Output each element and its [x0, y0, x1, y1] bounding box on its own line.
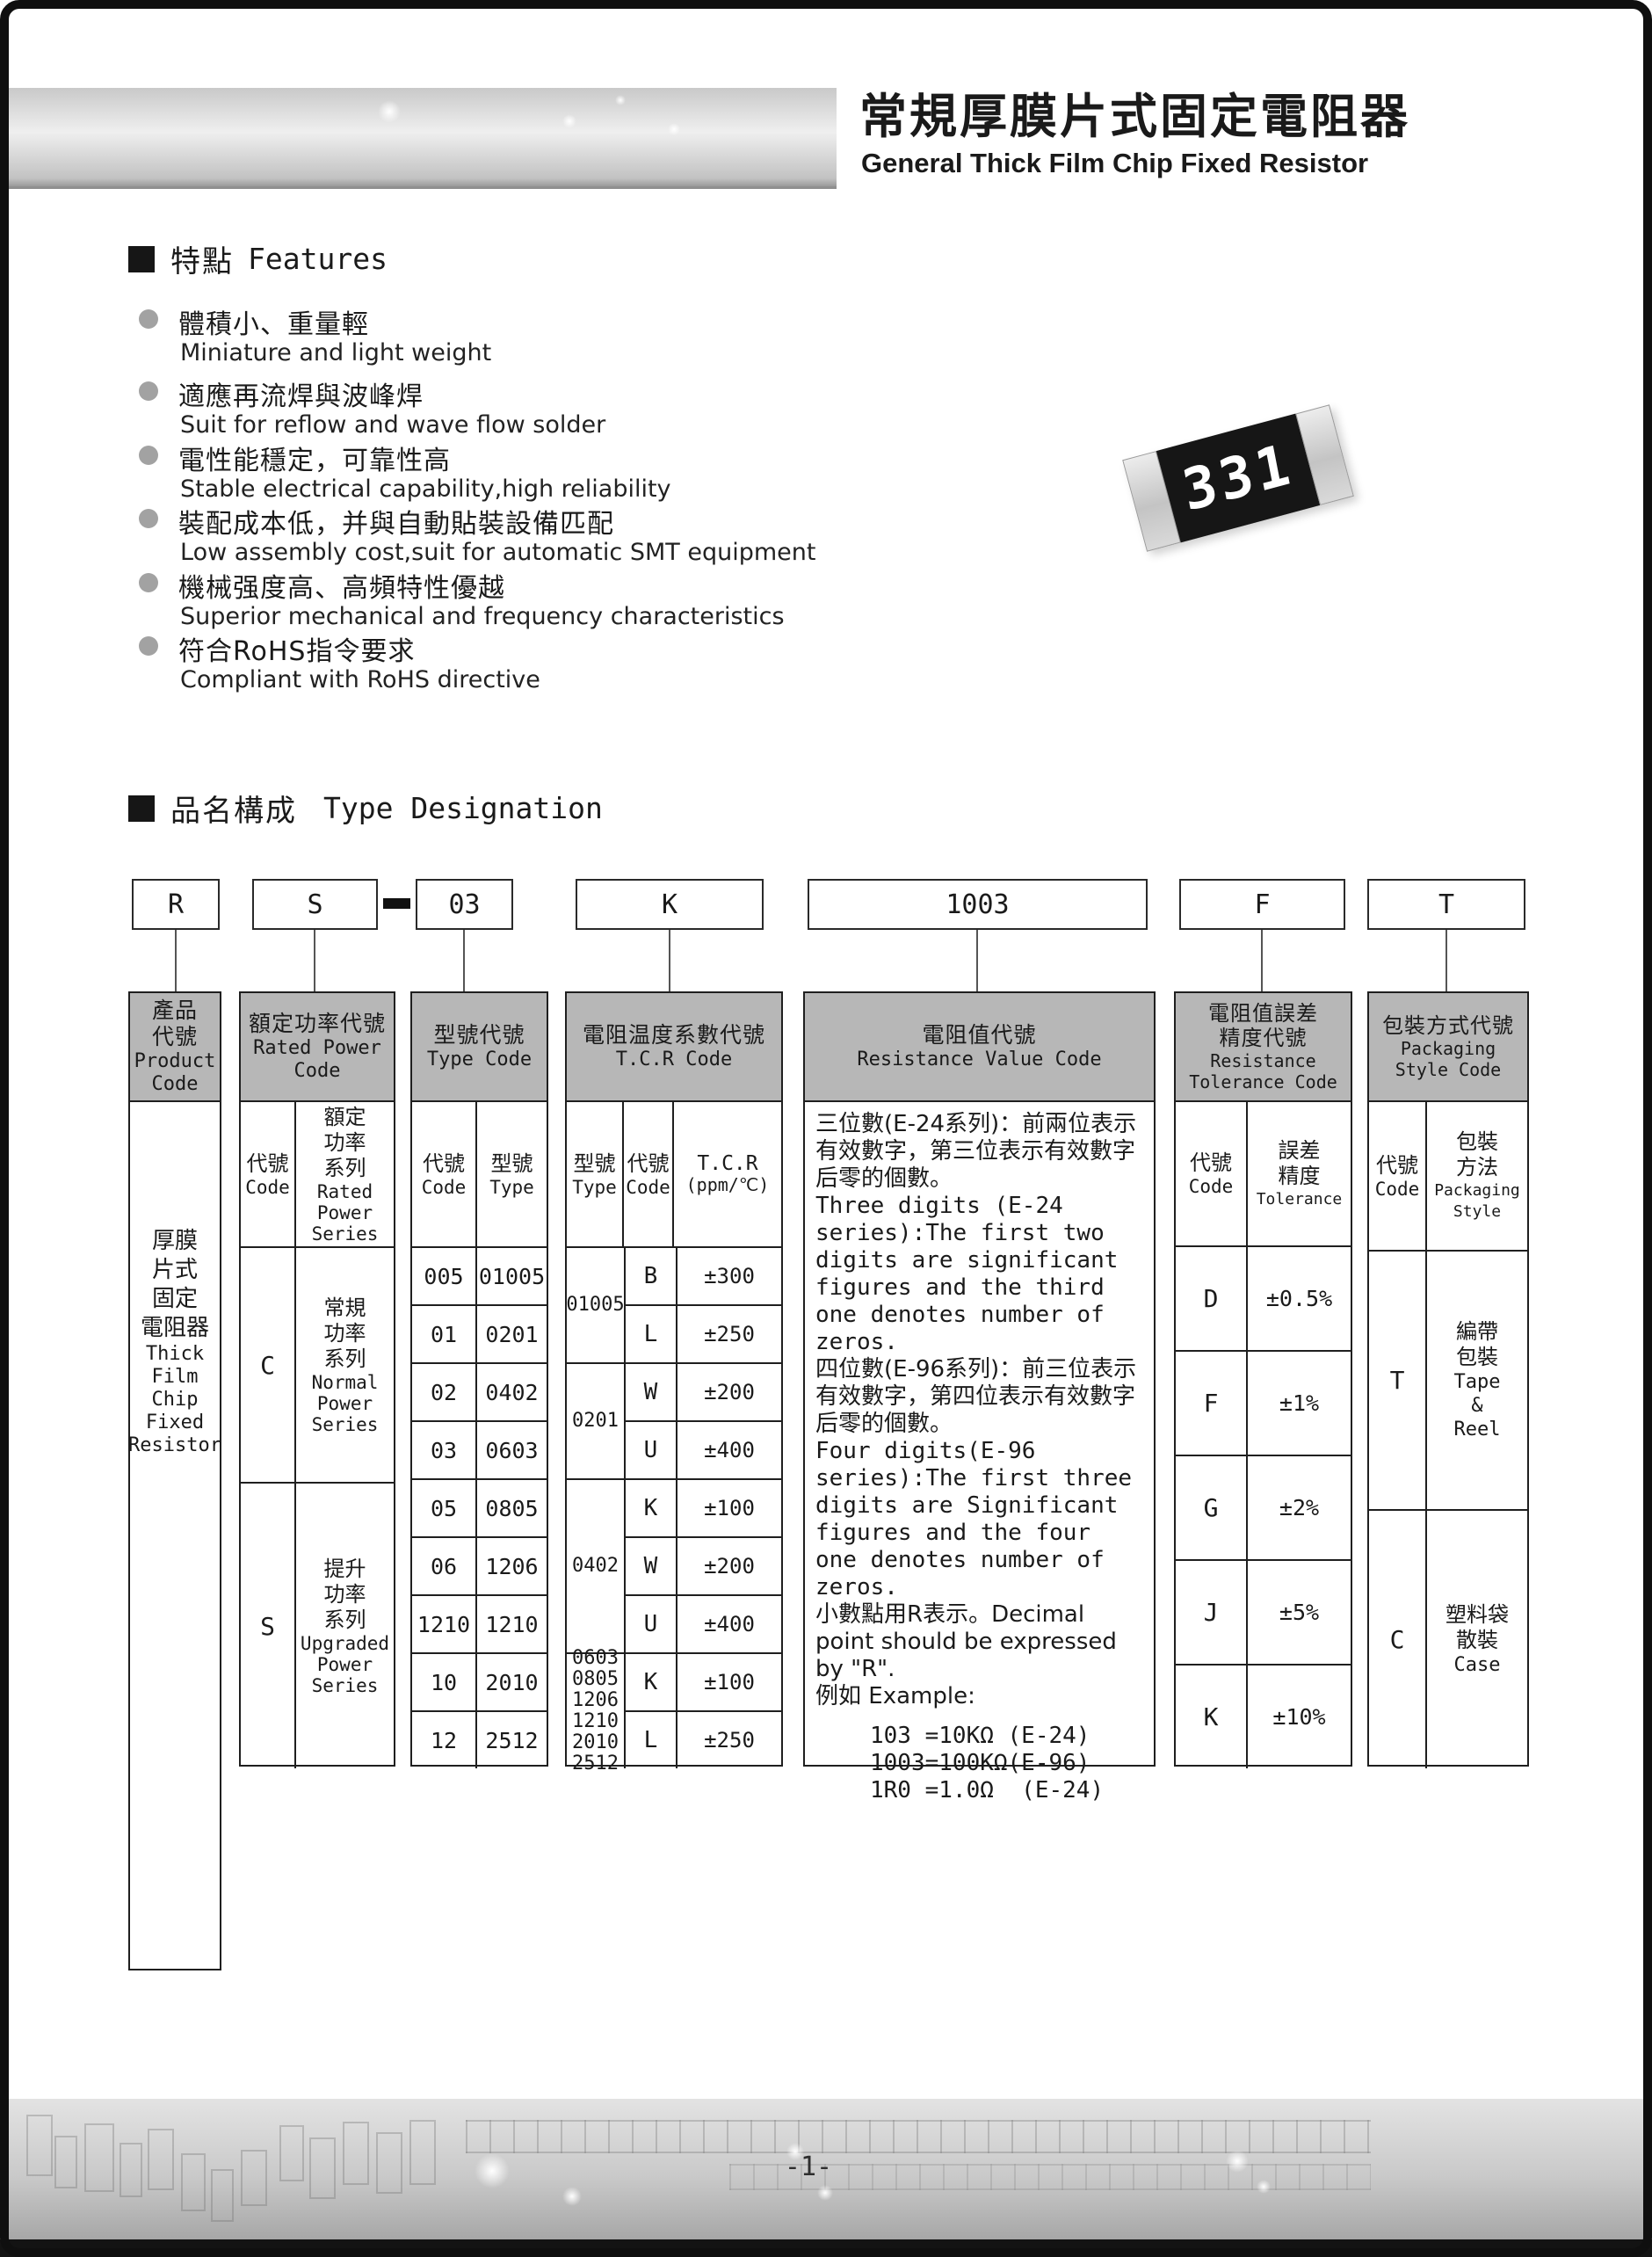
- packaging-row-case: C 塑料袋 散裝 Case: [1369, 1509, 1527, 1768]
- type-label-cell: 型號 Type: [567, 1102, 624, 1246]
- feature-item-cjk: 機械强度高、高頻特性優越: [178, 566, 505, 605]
- feature-item-en: Low assembly cost,suit for automatic SMT…: [180, 539, 815, 566]
- footer-decor-rect: [148, 2129, 174, 2190]
- header-line: 電阻值代號: [922, 1022, 1036, 1049]
- header-line: T.C.R Code: [616, 1049, 732, 1071]
- tcr-row: L ±250: [626, 1710, 781, 1768]
- feature-item-en: Miniature and light weight: [180, 339, 491, 366]
- bullet-icon: [139, 381, 158, 401]
- tcr-row: K ±100: [626, 1654, 781, 1710]
- type-line: 2010: [572, 1732, 619, 1753]
- column-type-header: 型號代號 Type Code: [412, 993, 547, 1102]
- type-code: 05: [412, 1480, 477, 1536]
- tcr-row: U ±400: [626, 1594, 781, 1652]
- tcr-value: ±200: [677, 1364, 781, 1420]
- footer-decor-rect: [309, 2137, 336, 2199]
- code-box-type: 03: [416, 879, 513, 930]
- product-name-line: Thick: [146, 1343, 204, 1366]
- tcr-group-rows: K ±100 L ±250: [624, 1654, 781, 1768]
- tolerance-value: ±1%: [1248, 1352, 1351, 1455]
- label-line: 型號: [574, 1151, 616, 1177]
- type-code: 10: [412, 1654, 477, 1710]
- value-example-line: 1R0 =1.0Ω (E-24): [815, 1777, 1143, 1804]
- product-name-line: 電阻器: [141, 1314, 209, 1343]
- footer-decor-rect: [181, 2153, 206, 2211]
- type-size: 0201: [477, 1306, 547, 1362]
- tcr-value: ±400: [677, 1422, 781, 1478]
- connector-line: [1445, 930, 1447, 991]
- style-line: 塑料袋: [1445, 1602, 1509, 1628]
- style-line: Tape: [1454, 1370, 1501, 1394]
- tolerance-row: G ±2%: [1176, 1455, 1351, 1559]
- code-label-cell: 代號 Code: [1369, 1102, 1427, 1250]
- type-subheader: 代號 Code 型號 Type: [412, 1102, 547, 1246]
- product-name-line: 片式: [152, 1256, 198, 1285]
- label-line: Code: [1189, 1176, 1234, 1197]
- column-product: 產品 代號 Product Code 厚膜 片式 固定 電阻器 Thick Fi…: [128, 991, 221, 1970]
- packaging-row-tape: T 編帶 包裝 Tape & Reel: [1369, 1250, 1527, 1509]
- value-paragraph: Four digits(E-96 series):The first three…: [815, 1438, 1143, 1601]
- connector-line: [1261, 930, 1263, 991]
- bullet-icon: [139, 573, 158, 592]
- type-line: 0805: [572, 1669, 619, 1690]
- column-tcr: 電阻温度系數代號 T.C.R Code 型號 Type 代號 Code T.C.…: [565, 991, 783, 1767]
- power-row-normal: C 常規 功率 系列 Normal Power Series: [241, 1246, 394, 1482]
- feature-item-cjk: 裝配成本低，并與自動貼裝設備匹配: [178, 502, 614, 541]
- tolerance-row: D ±0.5%: [1176, 1245, 1351, 1350]
- tcr-code: L: [626, 1712, 677, 1768]
- type-row: 05 0805: [412, 1478, 547, 1536]
- value-example-line: 1003=100KΩ(E-96): [815, 1750, 1143, 1777]
- label-line: Code: [245, 1177, 290, 1198]
- feature-item-en: Superior mechanical and frequency charac…: [180, 603, 785, 630]
- tcr-code: U: [626, 1596, 677, 1652]
- label-line: 系列: [324, 1156, 366, 1181]
- power-subheader: 代號 Code 額定 功率 系列 Rated Power Series: [241, 1102, 394, 1246]
- type-size: 1210: [477, 1596, 547, 1652]
- footer-decor-rect: [84, 2123, 114, 2192]
- series-line: Normal: [312, 1372, 379, 1393]
- code-label-cell: 代號 Code: [624, 1102, 674, 1246]
- header-gradient-band: [0, 88, 837, 189]
- packaging-code: C: [1369, 1511, 1427, 1768]
- value-paragraph: Three digits (E-24 series):The first two…: [815, 1193, 1143, 1356]
- code-label-cell: 代號 Code: [1176, 1102, 1248, 1245]
- tcr-value: ±300: [677, 1248, 781, 1304]
- code-box-packaging: T: [1367, 879, 1525, 930]
- header-line: 額定功率代號: [249, 1011, 386, 1037]
- feature-item-cjk: 適應再流焊與波峰焊: [178, 374, 424, 413]
- value-paragraph: 四位數(E-96系列)：前三位表示有效數字，第四位表示有效數字后零的個數。: [815, 1356, 1143, 1438]
- type-code: 06: [412, 1538, 477, 1594]
- type-size: 2512: [477, 1712, 547, 1768]
- label-line: 額定: [324, 1105, 366, 1130]
- designation-heading-cjk: 品名構成: [170, 787, 297, 830]
- header-line: Type Code: [427, 1049, 532, 1071]
- tcr-row: L ±250: [626, 1304, 781, 1362]
- value-paragraph: 三位數(E-24系列)：前兩位表示有效數字，第三位表示有效數字后零的個數。: [815, 1111, 1143, 1193]
- tcr-code: K: [626, 1654, 677, 1710]
- power-series-cell: 提升 功率 系列 Upgraded Power Series: [296, 1484, 394, 1768]
- label-line: Code: [422, 1177, 467, 1198]
- packaging-style-cell: 塑料袋 散裝 Case: [1427, 1511, 1527, 1768]
- header-line: Code: [294, 1060, 341, 1083]
- code-box-power: S: [252, 879, 378, 930]
- code-label-cell: 代號 Code: [412, 1102, 477, 1246]
- tcr-code: W: [626, 1538, 677, 1594]
- header-line: Product: [134, 1050, 216, 1073]
- type-line: 0402: [572, 1556, 619, 1577]
- bullet-icon: [139, 636, 158, 656]
- type-size: 01005: [477, 1248, 547, 1304]
- sparkle-decoration: [1257, 2180, 1271, 2194]
- tcr-code: B: [626, 1248, 677, 1304]
- sparkle-decoration: [378, 100, 401, 123]
- label-line: 代號: [1376, 1153, 1418, 1179]
- type-row: 02 0402: [412, 1362, 547, 1420]
- features-heading-en: Features: [248, 242, 388, 276]
- type-line: 0201: [572, 1411, 619, 1432]
- power-code: C: [260, 1351, 275, 1380]
- tolerance-subheader: 代號 Code 誤差 精度 Tolerance: [1176, 1102, 1351, 1245]
- column-type: 型號代號 Type Code 代號 Code 型號 Type 005 01005…: [410, 991, 548, 1767]
- type-size: 1206: [477, 1538, 547, 1594]
- column-power: 額定功率代號 Rated Power Code 代號 Code 額定 功率 系列…: [239, 991, 395, 1767]
- tcr-group-type: 01005: [567, 1248, 624, 1362]
- tcr-value: ±100: [677, 1654, 781, 1710]
- type-row: 005 01005: [412, 1246, 547, 1304]
- label-line: Series: [312, 1223, 379, 1245]
- tcr-group-rows: K ±100 W ±200 U ±400: [624, 1480, 781, 1652]
- column-product-body: 厚膜 片式 固定 電阻器 Thick Film Chip Fixed Resis…: [130, 1102, 220, 1969]
- series-line: Series: [312, 1414, 379, 1435]
- label-line: 代號: [627, 1151, 670, 1177]
- label-line: Code: [626, 1177, 670, 1198]
- type-row: 10 2010: [412, 1652, 547, 1710]
- type-line: 1206: [572, 1690, 619, 1711]
- designation-heading-en: Type Designation: [323, 791, 603, 825]
- page-number: -1-: [721, 2152, 896, 2182]
- product-name-line: Chip: [152, 1389, 199, 1412]
- series-line: 功率: [324, 1321, 366, 1346]
- connector-line: [976, 930, 978, 991]
- series-line: 功率: [324, 1582, 366, 1607]
- datasheet-page: 常規厚膜片式固定電阻器 General Thick Film Chip Fixe…: [0, 0, 1652, 2257]
- type-size: 2010: [477, 1654, 547, 1710]
- value-paragraph: 例如 Example:: [815, 1683, 1143, 1710]
- sparkle-decoration: [1226, 2150, 1249, 2173]
- tcr-group-type: 0603 0805 1206 1210 2010 2512: [567, 1654, 624, 1768]
- header-line: 產品: [152, 998, 198, 1024]
- product-name-line: Resistor: [128, 1434, 221, 1457]
- footer-decor-rect: [120, 2143, 142, 2197]
- power-code-cell: S: [241, 1484, 296, 1768]
- tolerance-label-cell: 誤差 精度 Tolerance: [1248, 1102, 1351, 1245]
- packaging-subheader: 代號 Code 包裝 方法 Packaging Style: [1369, 1102, 1527, 1250]
- footer-decor-rect: [241, 2150, 267, 2206]
- header-line: 型號代號: [433, 1022, 525, 1049]
- tcr-code: U: [626, 1422, 677, 1478]
- value-paragraph: 小數點用R表示。Decimal point should be expresse…: [815, 1601, 1143, 1683]
- label-line: Packaging: [1434, 1180, 1520, 1201]
- label-line: Code: [1375, 1179, 1420, 1200]
- bullet-icon: [139, 446, 158, 465]
- label-line: Rated: [317, 1181, 373, 1202]
- tolerance-row: K ±10%: [1176, 1664, 1351, 1768]
- sparkle-decoration: [817, 2185, 833, 2201]
- tcr-group-type: 0402: [567, 1480, 624, 1652]
- series-line: Upgraded: [301, 1633, 389, 1654]
- header-line: 電阻值誤差: [1208, 1001, 1318, 1026]
- label-line: Style: [1453, 1201, 1501, 1223]
- type-line: 1210: [572, 1711, 619, 1732]
- tcr-group-rows: B ±300 L ±250: [624, 1248, 781, 1362]
- tolerance-row: F ±1%: [1176, 1350, 1351, 1455]
- resistor-chip-image: 331: [1127, 397, 1356, 573]
- tolerance-value: ±10%: [1248, 1666, 1351, 1768]
- tcr-value: ±200: [677, 1538, 781, 1594]
- tcr-group-rows: W ±200 U ±400: [624, 1364, 781, 1478]
- style-label-cell: 包裝 方法 Packaging Style: [1427, 1102, 1527, 1250]
- power-code-cell: C: [241, 1248, 296, 1482]
- bullet-icon: [139, 309, 158, 329]
- type-code: 1210: [412, 1596, 477, 1652]
- series-line: 系列: [324, 1346, 366, 1372]
- feature-item-en: Compliant with RoHS directive: [180, 666, 540, 693]
- code-box-value: 1003: [808, 879, 1148, 930]
- label-line: Type: [572, 1177, 617, 1198]
- header-line: Tolerance Code: [1189, 1071, 1337, 1092]
- chip-marking: 331: [1177, 432, 1298, 525]
- series-line: 系列: [324, 1607, 366, 1633]
- footer-decor-rect: [279, 2125, 304, 2181]
- tolerance-row: J ±5%: [1176, 1559, 1351, 1664]
- product-name-line: 厚膜: [152, 1227, 198, 1256]
- label-line: Tolerance: [1257, 1189, 1343, 1210]
- column-value-header: 電阻值代號 Resistance Value Code: [805, 993, 1154, 1102]
- series-label-cell: 額定 功率 系列 Rated Power Series: [296, 1102, 394, 1246]
- tcr-group-type: 0201: [567, 1364, 624, 1478]
- series-line: 常規: [324, 1295, 366, 1321]
- feature-item-en: Suit for reflow and wave flow solder: [180, 411, 605, 439]
- column-value: 電阻值代號 Resistance Value Code 三位數(E-24系列)：…: [803, 991, 1156, 1767]
- style-line: Reel: [1454, 1418, 1501, 1441]
- label-line: Power: [317, 1202, 373, 1223]
- label-line: 誤差: [1279, 1138, 1321, 1164]
- feature-item-en: Stable electrical capability,high reliab…: [180, 475, 671, 503]
- feature-item-cjk: 符合RoHS指令要求: [178, 629, 415, 668]
- type-row: 12 2512: [412, 1710, 547, 1768]
- column-tolerance: 電阻值誤差 精度代號 Resistance Tolerance Code 代號 …: [1174, 991, 1352, 1767]
- type-code: 02: [412, 1364, 477, 1420]
- tolerance-code: G: [1176, 1456, 1248, 1559]
- page-subtitle: General Thick Film Chip Fixed Resistor: [861, 148, 1368, 179]
- label-line: 功率: [324, 1130, 366, 1156]
- column-product-header: 產品 代號 Product Code: [130, 993, 220, 1102]
- chip-package: 331: [1122, 404, 1354, 551]
- footer-pattern: [466, 2120, 1371, 2153]
- section-square-icon: [128, 795, 155, 822]
- type-code: 01: [412, 1306, 477, 1362]
- tcr-value: ±100: [677, 1480, 781, 1536]
- column-tcr-header: 電阻温度系數代號 T.C.R Code: [567, 993, 781, 1102]
- code-box-tolerance: F: [1179, 879, 1345, 930]
- type-line: 2512: [572, 1753, 619, 1774]
- tcr-group: 0603 0805 1206 1210 2010 2512 K ±100 L ±…: [567, 1652, 781, 1768]
- tcr-subheader: 型號 Type 代號 Code T.C.R (ppm/℃): [567, 1102, 781, 1246]
- label-line: 精度: [1279, 1164, 1321, 1189]
- type-code: 03: [412, 1422, 477, 1478]
- product-name-line: 固定: [152, 1285, 198, 1314]
- tcr-code: K: [626, 1480, 677, 1536]
- style-line: 編帶: [1456, 1319, 1498, 1345]
- sparkle-decoration: [668, 123, 680, 135]
- tcr-value: ±400: [677, 1596, 781, 1652]
- type-label-cell: 型號 Type: [477, 1102, 547, 1246]
- bottom-bar: [0, 2239, 1652, 2257]
- tolerance-value: ±5%: [1248, 1561, 1351, 1664]
- tcr-value: ±250: [677, 1306, 781, 1362]
- label-line: 型號: [491, 1151, 533, 1177]
- header-line: Style Code: [1395, 1059, 1501, 1080]
- style-line: 包裝: [1456, 1345, 1498, 1370]
- header-line: Resistance: [1210, 1050, 1315, 1071]
- footer-decor-rect: [409, 2120, 436, 2185]
- tcr-value: ±250: [677, 1712, 781, 1768]
- tolerance-code: K: [1176, 1666, 1248, 1768]
- connector-line: [669, 930, 670, 991]
- connector-line: [463, 930, 465, 991]
- header-line: Packaging: [1401, 1038, 1496, 1059]
- sparkle-decoration: [562, 114, 576, 128]
- header-line: Rated Power: [253, 1037, 381, 1060]
- tcr-row: B ±300: [626, 1248, 781, 1304]
- tolerance-value: ±2%: [1248, 1456, 1351, 1559]
- tcr-group: 01005 B ±300 L ±250: [567, 1246, 781, 1362]
- tolerance-code: F: [1176, 1352, 1248, 1455]
- tcr-code: W: [626, 1364, 677, 1420]
- page-title: 常規厚膜片式固定電阻器: [859, 77, 1410, 147]
- chip-body: 331: [1156, 414, 1320, 543]
- label-line: 代號: [423, 1151, 465, 1177]
- header-line: 代號: [152, 1024, 198, 1050]
- value-examples: 103 =10KΩ (E-24) 1003=100KΩ(E-96) 1R0 =1…: [815, 1723, 1143, 1804]
- tcr-row: K ±100: [626, 1480, 781, 1536]
- connector-line: [175, 930, 177, 991]
- header-line: Code: [152, 1073, 199, 1096]
- tcr-row: W ±200: [626, 1364, 781, 1420]
- type-size: 0402: [477, 1364, 547, 1420]
- type-size: 0805: [477, 1480, 547, 1536]
- header-line: 精度代號: [1220, 1026, 1308, 1050]
- tcr-label-cell: T.C.R (ppm/℃): [674, 1102, 781, 1246]
- header-line: Resistance Value Code: [857, 1049, 1101, 1071]
- tolerance-code: D: [1176, 1247, 1248, 1350]
- sparkle-decoration: [562, 2187, 582, 2206]
- footer-decor-rect: [211, 2169, 234, 2222]
- product-name-line: Film: [152, 1366, 199, 1389]
- header-line: 包裝方式代號: [1382, 1013, 1514, 1038]
- style-line: Case: [1454, 1653, 1501, 1677]
- type-row: 06 1206: [412, 1536, 547, 1594]
- type-line: 01005: [566, 1295, 624, 1316]
- section-square-icon: [128, 246, 155, 272]
- product-name-line: Fixed: [146, 1412, 204, 1434]
- value-example-line: 103 =10KΩ (E-24): [815, 1723, 1143, 1750]
- code-box-tcr: K: [576, 879, 764, 930]
- value-description: 三位數(E-24系列)：前兩位表示有效數字，第三位表示有效數字后零的個數。 Th…: [805, 1102, 1154, 1765]
- power-code: S: [260, 1612, 275, 1641]
- feature-item-cjk: 電性能穩定，可靠性高: [178, 439, 451, 477]
- type-row: 03 0603: [412, 1420, 547, 1478]
- type-code: 005: [412, 1248, 477, 1304]
- packaging-code: T: [1369, 1252, 1427, 1509]
- series-line: 提升: [324, 1557, 366, 1582]
- footer-decor-rect: [54, 2136, 77, 2188]
- column-tolerance-header: 電阻值誤差 精度代號 Resistance Tolerance Code: [1176, 993, 1351, 1102]
- series-line: Power: [317, 1654, 373, 1675]
- column-power-header: 額定功率代號 Rated Power Code: [241, 993, 394, 1102]
- label-line: 方法: [1456, 1155, 1498, 1180]
- features-heading-cjk: 特點: [170, 237, 234, 280]
- packaging-style-cell: 編帶 包裝 Tape & Reel: [1427, 1252, 1527, 1509]
- type-row: 1210 1210: [412, 1594, 547, 1652]
- label-line: T.C.R: [697, 1153, 757, 1174]
- bullet-icon: [139, 509, 158, 528]
- type-designation-section-heading: 品名構成 Type Designation: [128, 787, 603, 830]
- footer-decor-rect: [376, 2132, 402, 2194]
- label-line: 包裝: [1456, 1129, 1498, 1155]
- sparkle-decoration: [615, 95, 626, 105]
- tolerance-code: J: [1176, 1561, 1248, 1664]
- header-line: 電阻温度系數代號: [583, 1022, 765, 1049]
- connector-line: [314, 930, 315, 991]
- column-packaging: 包裝方式代號 Packaging Style Code 代號 Code 包裝 方…: [1367, 991, 1529, 1767]
- tcr-code: L: [626, 1306, 677, 1362]
- label-line: 代號: [247, 1151, 289, 1177]
- style-line: &: [1471, 1394, 1482, 1418]
- tcr-row: U ±400: [626, 1420, 781, 1478]
- label-line: (ppm/℃): [686, 1174, 770, 1195]
- type-size: 0603: [477, 1422, 547, 1478]
- feature-item-cjk: 體積小、重量輕: [178, 302, 369, 341]
- code-label-cell: 代號 Code: [241, 1102, 296, 1246]
- tcr-group: 0402 K ±100 W ±200 U ±400: [567, 1478, 781, 1652]
- footer-decor-rect: [343, 2122, 369, 2185]
- features-section-heading: 特點 Features: [128, 237, 388, 280]
- type-line: 0603: [572, 1648, 619, 1669]
- sparkle-decoration: [475, 2153, 510, 2188]
- label-line: 代號: [1190, 1150, 1232, 1176]
- tcr-row: W ±200: [626, 1536, 781, 1594]
- series-line: Series: [312, 1675, 379, 1696]
- column-packaging-header: 包裝方式代號 Packaging Style Code: [1369, 993, 1527, 1102]
- type-row: 01 0201: [412, 1304, 547, 1362]
- label-line: Type: [489, 1177, 534, 1198]
- code-box-product: R: [132, 879, 220, 930]
- series-line: Power: [317, 1393, 373, 1414]
- tcr-group: 0201 W ±200 U ±400: [567, 1362, 781, 1478]
- separator-dash: -: [383, 898, 410, 909]
- style-line: 散裝: [1456, 1628, 1498, 1653]
- power-series-cell: 常規 功率 系列 Normal Power Series: [296, 1248, 394, 1482]
- tolerance-value: ±0.5%: [1248, 1247, 1351, 1350]
- type-code: 12: [412, 1712, 477, 1768]
- power-row-upgraded: S 提升 功率 系列 Upgraded Power Series: [241, 1482, 394, 1768]
- footer-decor-rect: [26, 2115, 53, 2176]
